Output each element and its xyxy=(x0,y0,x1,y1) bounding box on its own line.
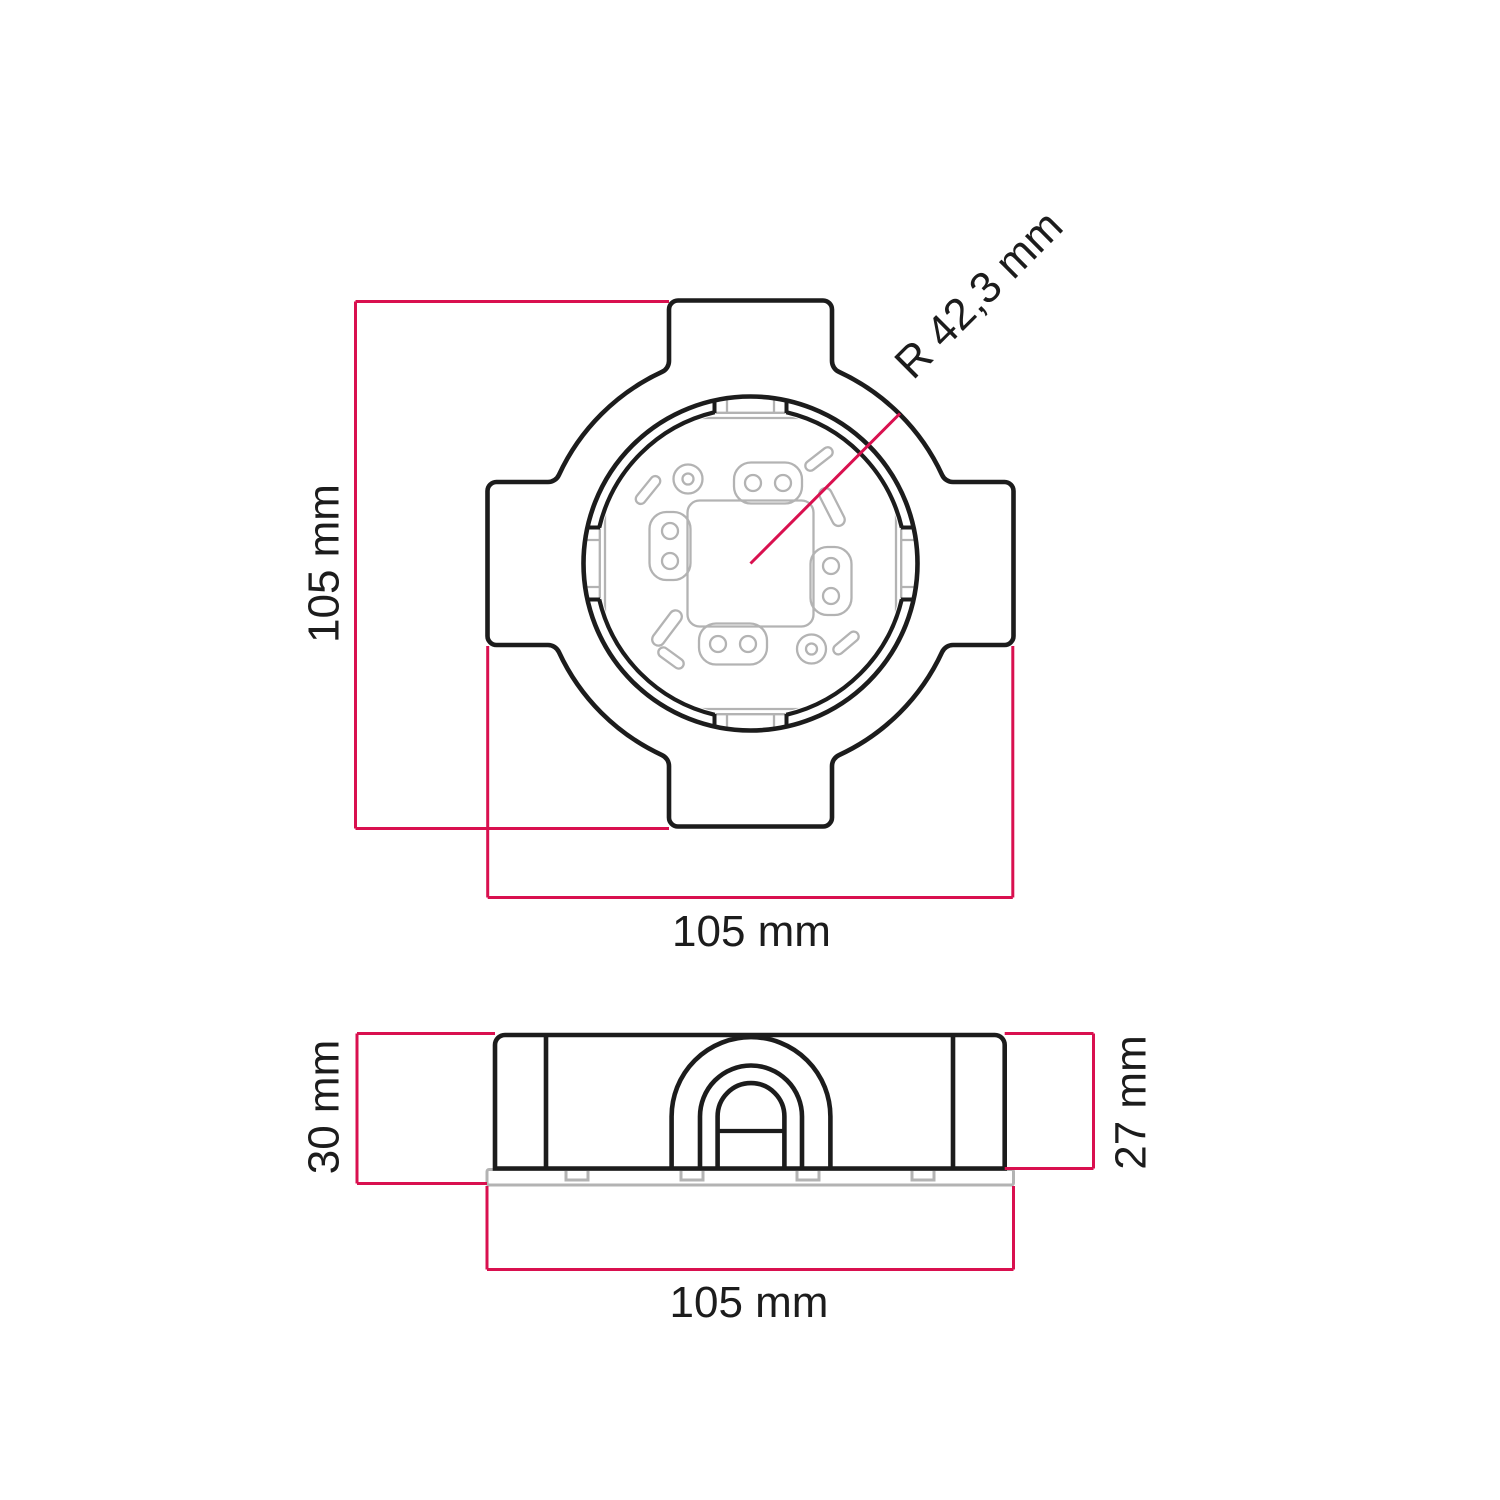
svg-text:R 42,3 mm: R 42,3 mm xyxy=(885,201,1072,388)
svg-text:105 mm: 105 mm xyxy=(300,484,349,643)
svg-text:30 mm: 30 mm xyxy=(300,1040,349,1174)
svg-text:105 mm: 105 mm xyxy=(672,907,831,956)
svg-text:105 mm: 105 mm xyxy=(670,1278,829,1327)
svg-text:27 mm: 27 mm xyxy=(1107,1035,1156,1169)
